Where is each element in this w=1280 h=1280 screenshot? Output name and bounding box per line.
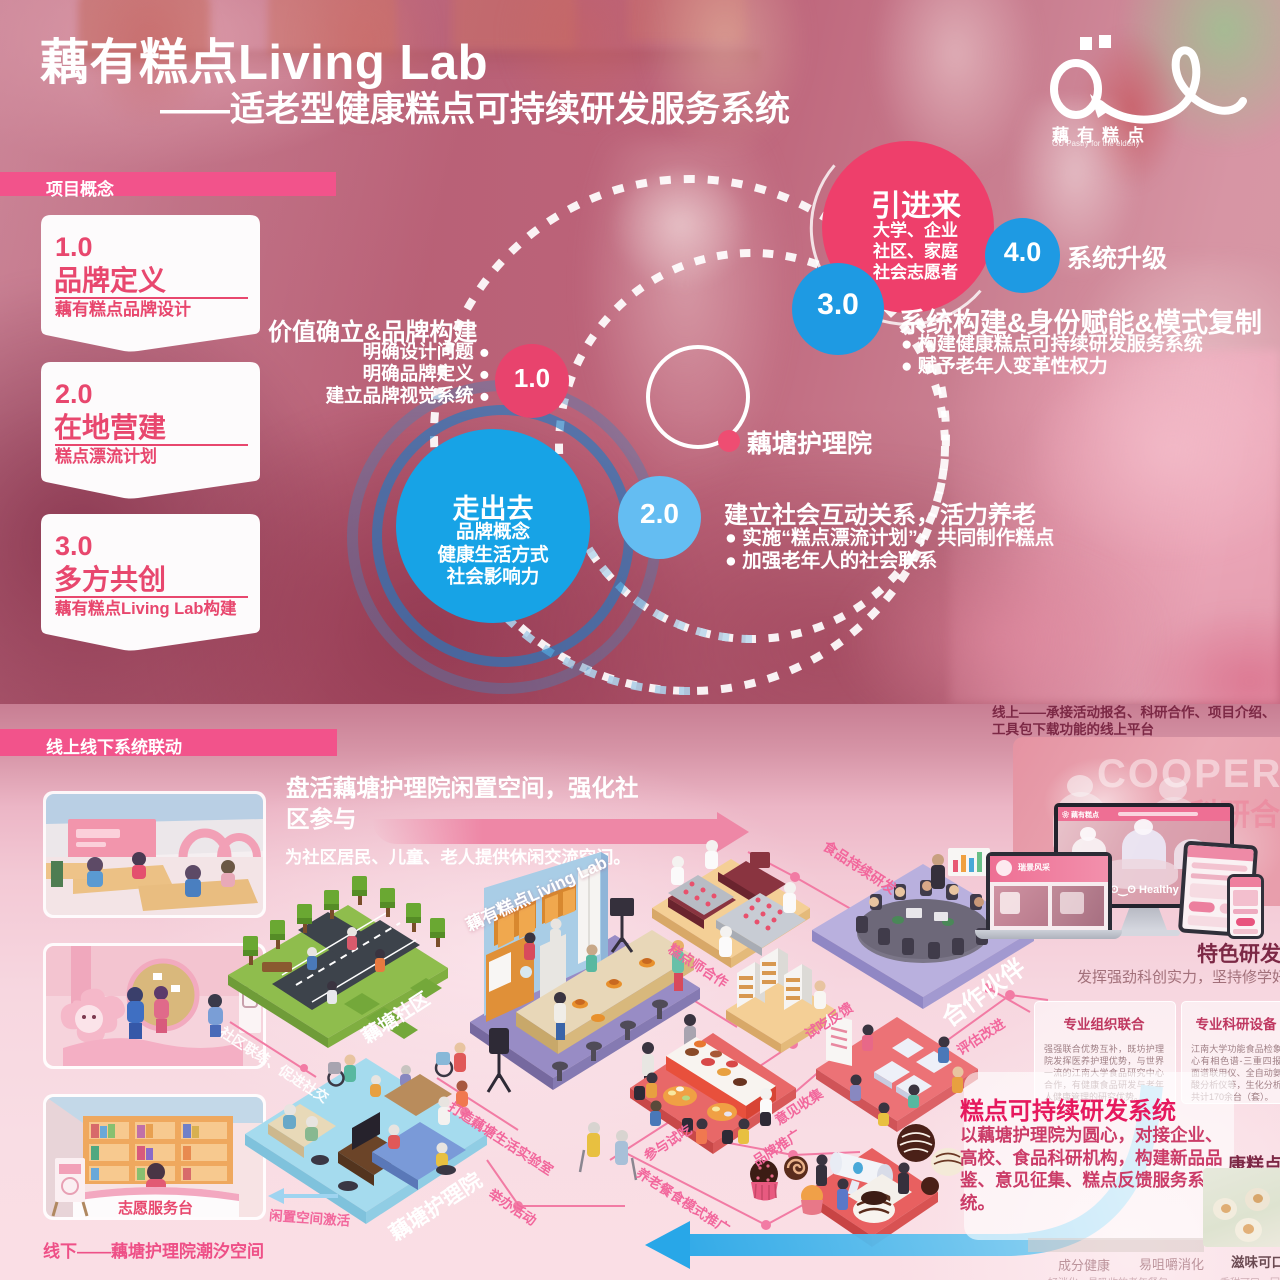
svg-text:1.0: 1.0 [55, 232, 93, 262]
svg-text:品牌定义: 品牌定义 [54, 264, 166, 296]
svg-text:糕点漂流计划: 糕点漂流计划 [55, 446, 157, 466]
svg-text:2.0: 2.0 [55, 379, 93, 409]
svg-text:3.0: 3.0 [55, 531, 93, 561]
svg-text:藕有糕点Living Lab构建: 藕有糕点Living Lab构建 [54, 598, 237, 618]
svg-text:多方共创: 多方共创 [54, 563, 166, 595]
svg-text:藕有糕点品牌设计: 藕有糕点品牌设计 [54, 299, 191, 319]
svg-text:在地营建: 在地营建 [54, 412, 166, 443]
